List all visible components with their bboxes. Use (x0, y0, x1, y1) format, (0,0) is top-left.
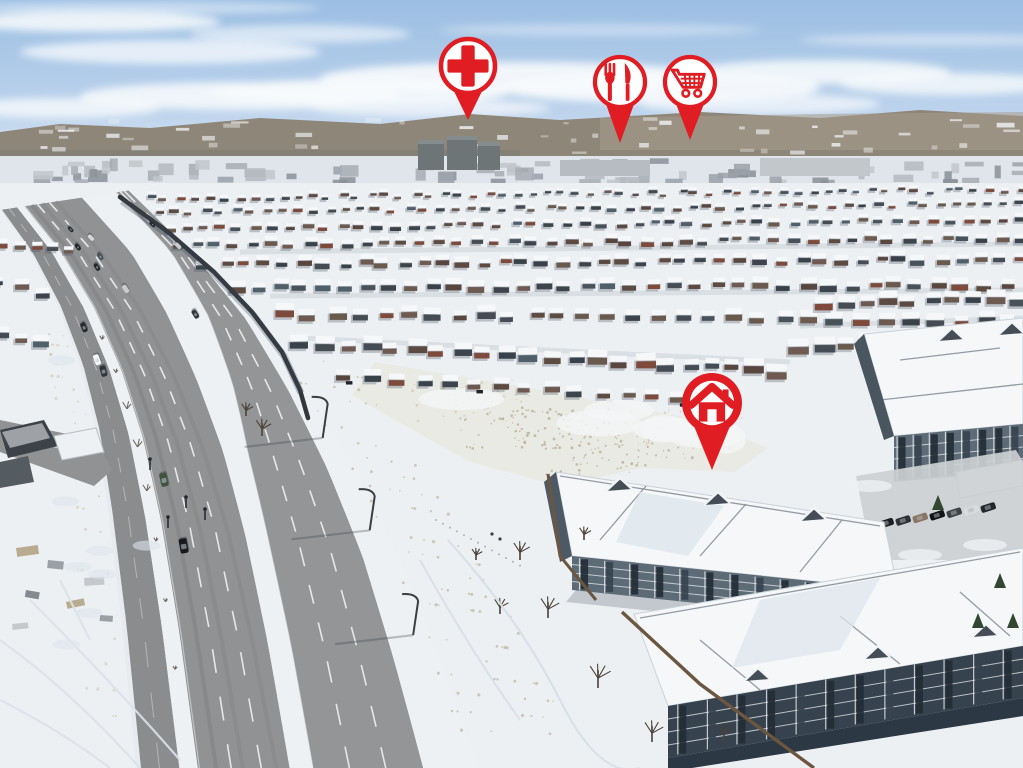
scene-canvas (0, 0, 1023, 768)
aerial-photo (0, 0, 1023, 768)
